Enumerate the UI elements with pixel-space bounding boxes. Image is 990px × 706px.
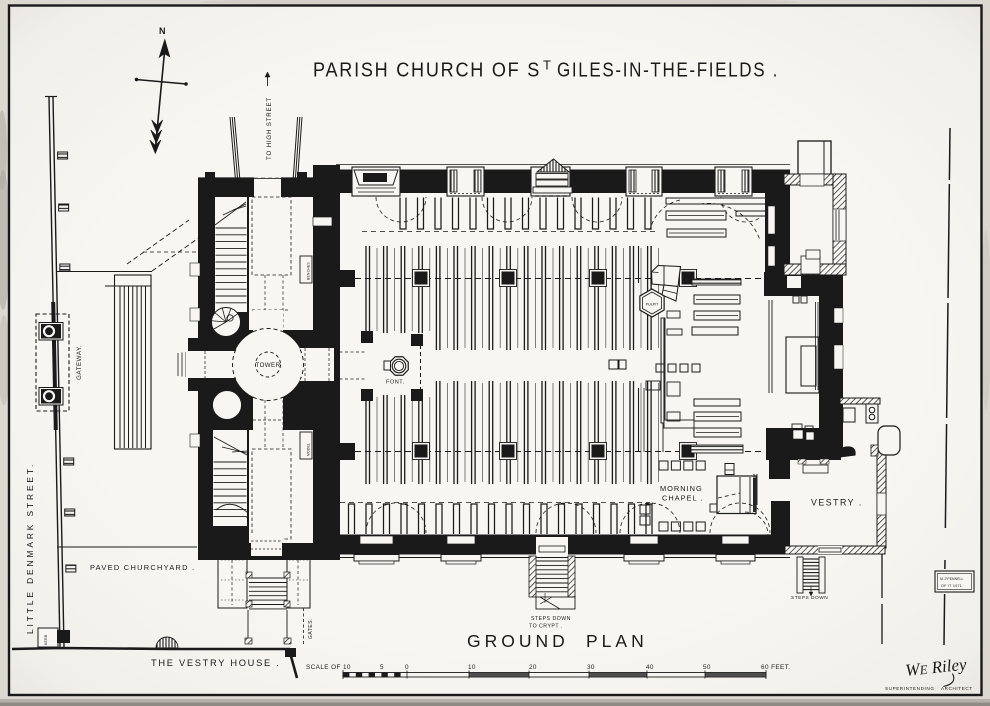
svg-text:PAVED CHURCHYARD .: PAVED CHURCHYARD . bbox=[90, 563, 196, 572]
svg-text:N: N bbox=[159, 26, 166, 36]
svg-text:LITTLE DENMARK STREET.: LITTLE DENMARK STREET. bbox=[25, 462, 35, 634]
svg-text:BENCHES: BENCHES bbox=[307, 262, 311, 280]
svg-text:PARISH CHURCH OF S: PARISH CHURCH OF S bbox=[313, 59, 541, 82]
svg-text:SCALE OF 10: SCALE OF 10 bbox=[306, 664, 351, 671]
svg-text:M.JᵀPENNELL: M.JᵀPENNELL bbox=[940, 577, 963, 581]
svg-text:TO CRYPT .: TO CRYPT . bbox=[529, 624, 563, 630]
svg-text:GATEWAY.: GATEWAY. bbox=[76, 345, 83, 380]
svg-text:SUPERINTENDING: SUPERINTENDING bbox=[885, 686, 935, 691]
svg-text:TOWER: TOWER bbox=[256, 362, 281, 369]
svg-text:ARCHITECT: ARCHITECT bbox=[941, 686, 973, 691]
svg-text:FONT.: FONT. bbox=[386, 380, 405, 386]
svg-text:20: 20 bbox=[529, 664, 537, 671]
svg-text:PLAN: PLAN bbox=[586, 631, 648, 651]
svg-text:STEPS DOWN: STEPS DOWN bbox=[791, 595, 828, 601]
svg-text:VESTRY .: VESTRY . bbox=[811, 498, 863, 508]
svg-text:10: 10 bbox=[468, 664, 476, 671]
svg-text:0: 0 bbox=[405, 664, 409, 671]
svg-text:PULPIT: PULPIT bbox=[646, 303, 659, 307]
svg-text:MORNING: MORNING bbox=[660, 484, 703, 493]
svg-text:THE VESTRY HOUSE .: THE VESTRY HOUSE . bbox=[151, 658, 280, 668]
svg-text:CHAPEL .: CHAPEL . bbox=[662, 494, 703, 503]
svg-text:MODEL: MODEL bbox=[307, 443, 311, 456]
svg-text:STEPS DOWN: STEPS DOWN bbox=[531, 616, 571, 622]
svg-text:30: 30 bbox=[587, 664, 595, 671]
svg-text:50: 50 bbox=[703, 664, 711, 671]
svg-text:40: 40 bbox=[646, 664, 654, 671]
svg-text:GROUND: GROUND bbox=[467, 631, 569, 651]
svg-text:KERB: KERB bbox=[44, 634, 48, 645]
svg-text:5: 5 bbox=[380, 664, 384, 671]
svg-text:60 FEET.: 60 FEET. bbox=[761, 664, 790, 671]
svg-text:GILES-IN-THE-FIELDS .: GILES-IN-THE-FIELDS . bbox=[557, 59, 779, 82]
svg-text:T: T bbox=[543, 58, 551, 73]
svg-text:TO HIGH STREET: TO HIGH STREET bbox=[266, 97, 273, 160]
svg-text:GATES.: GATES. bbox=[308, 618, 314, 639]
svg-text:OF IT 1071: OF IT 1071 bbox=[941, 584, 962, 588]
